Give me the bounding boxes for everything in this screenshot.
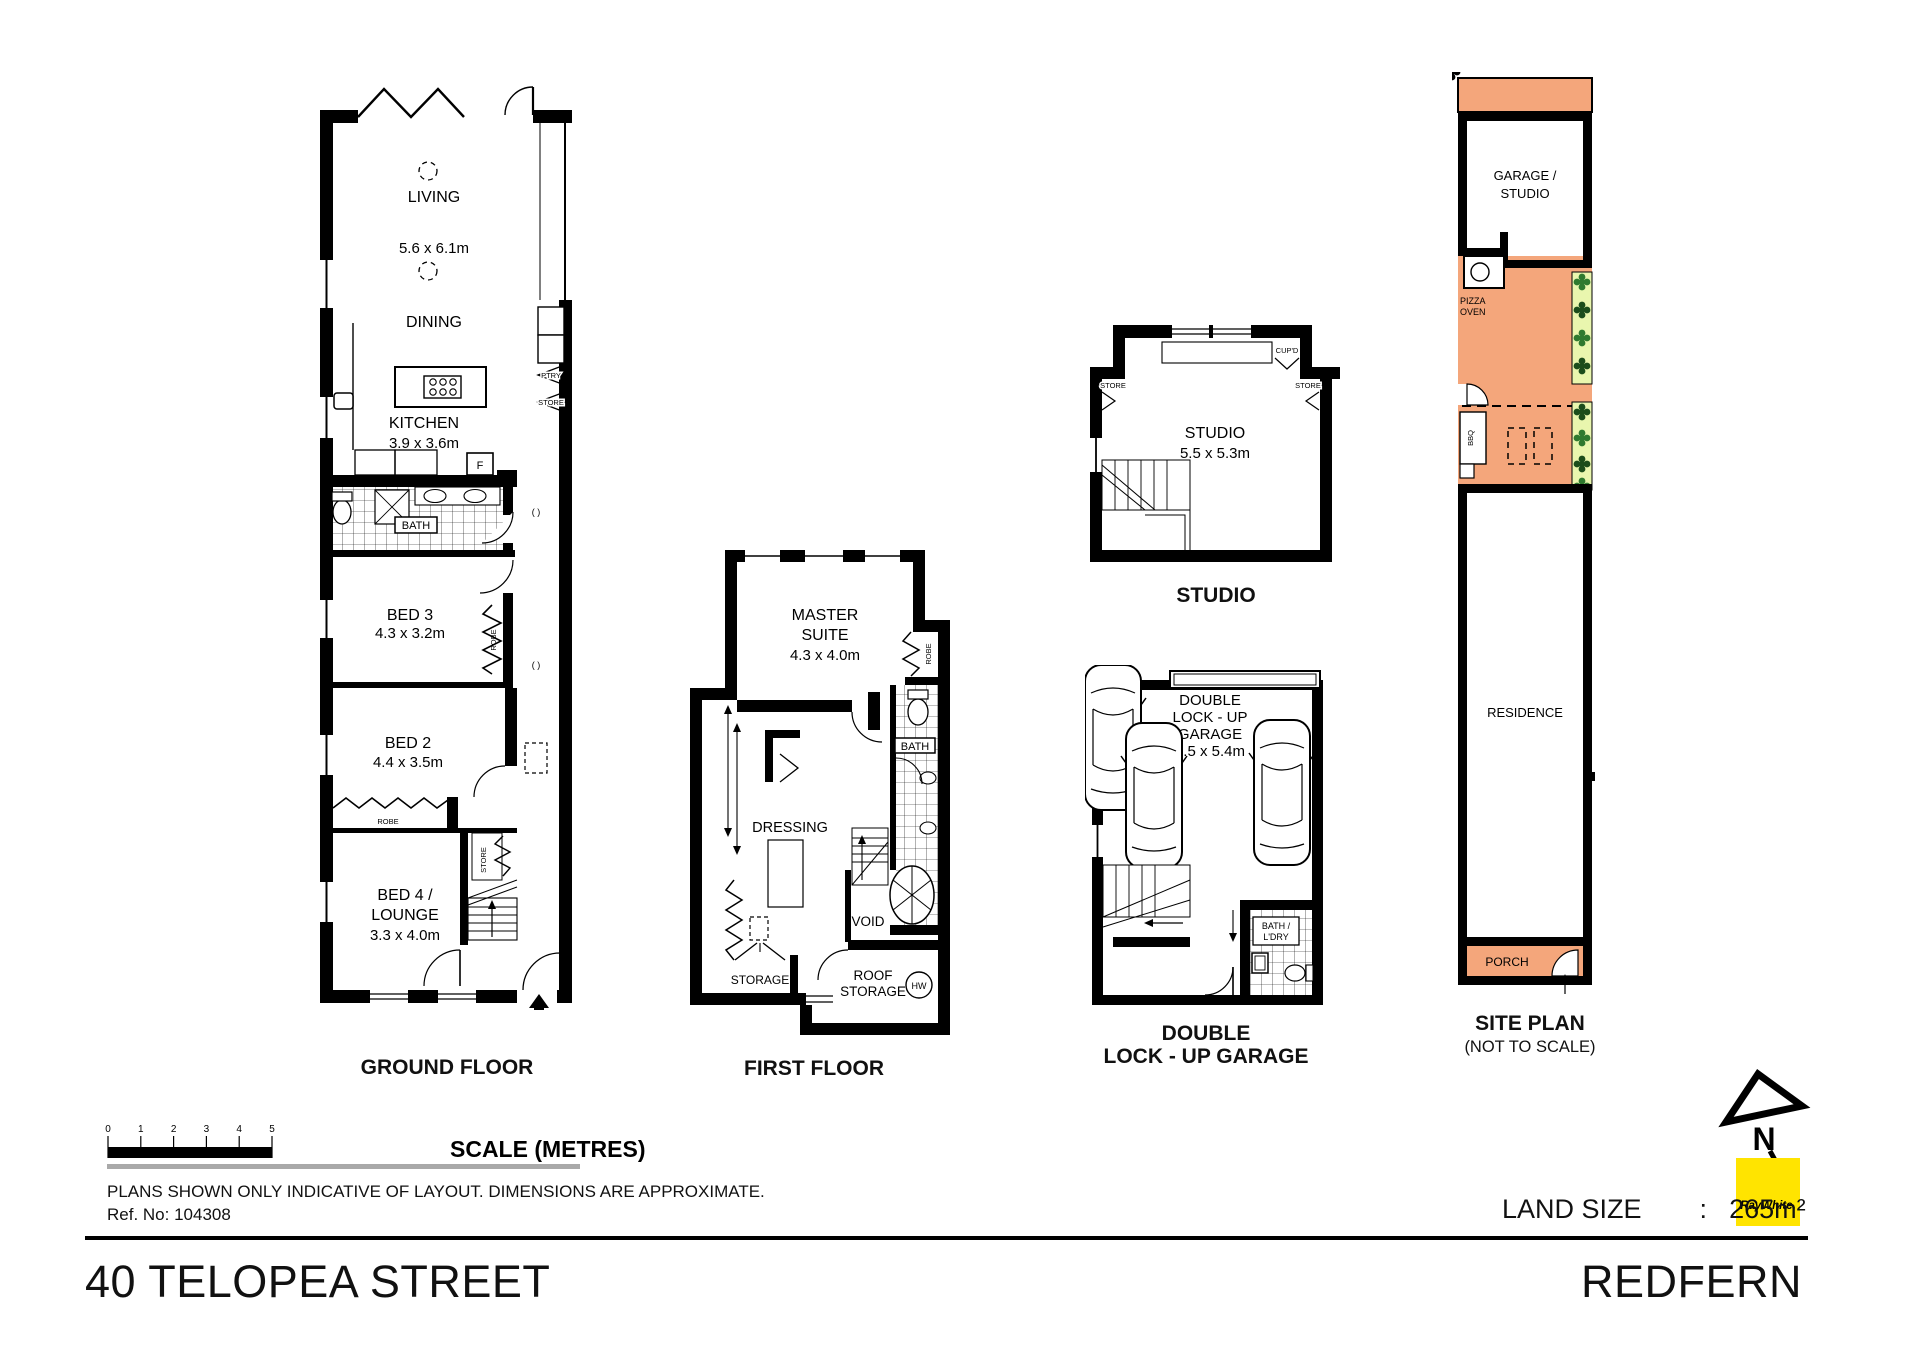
garage-bath-label-2: L'DRY <box>1263 932 1289 942</box>
bed4-door-arc <box>424 950 460 986</box>
storage-label: STORAGE <box>731 973 789 987</box>
land-size-value: 265m² <box>1729 1194 1806 1225</box>
bed4-label-1: BED 4 / <box>377 887 433 904</box>
porch-label: PORCH <box>1485 955 1528 969</box>
scale-tick-0: 0 <box>105 1124 111 1135</box>
robe-zigzag <box>333 798 448 808</box>
pizza-oven-icon <box>1471 263 1489 281</box>
bed2-door-arc <box>474 766 505 797</box>
bed3-dim: 4.3 x 3.2m <box>375 625 445 642</box>
down-arrow <box>1229 933 1237 942</box>
garage-caption-1: DOUBLE <box>1162 1022 1251 1046</box>
store-label: STORE <box>538 398 564 407</box>
land-size-row: LAND SIZE : 265m² <box>1502 1194 1806 1225</box>
garage-caption-2: LOCK - UP GARAGE <box>1104 1045 1309 1069</box>
garage-stairs <box>1103 865 1190 947</box>
first-floor-caption: FIRST FLOOR <box>744 1057 884 1081</box>
property-address: 40 TELOPEA STREET <box>85 1256 550 1308</box>
ground-floor-caption: GROUND FLOOR <box>361 1056 534 1080</box>
wardrobe-nook <box>765 730 800 782</box>
scale-tick-1: 1 <box>138 1124 144 1135</box>
residence-label: RESIDENCE <box>1487 705 1563 720</box>
bed2-robe-label: ROBE <box>377 817 398 826</box>
walkway-arrows <box>724 705 742 960</box>
living-label: LIVING <box>408 189 460 206</box>
toilet-icon <box>333 500 351 524</box>
bbq-label: BBQ <box>1466 430 1475 446</box>
kitchen-island <box>395 367 486 407</box>
toilet-icon <box>1285 965 1305 981</box>
site-porch: PORCH <box>1458 946 1592 994</box>
store-label: STORE <box>1100 381 1126 390</box>
dining-label: DINING <box>406 314 462 331</box>
garage-plan: DOUBLE LOCK - UP GARAGE 5.5 x 5.4m <box>1085 665 1335 1015</box>
scale-tick-2: 2 <box>171 1124 177 1135</box>
garage-label-2: LOCK - UP <box>1172 709 1247 726</box>
master-label-1: MASTER <box>792 607 859 624</box>
hw-label: HW <box>912 981 927 991</box>
first-stairs <box>852 828 888 885</box>
pizza-label-2: OVEN <box>1460 307 1486 317</box>
roof-storage-door-arc <box>818 950 848 980</box>
site-plan: GARAGE / STUDIO PIZZA OVEN <box>1452 72 1602 1002</box>
studio-label: STUDIO <box>1185 425 1245 442</box>
master-label-2: SUITE <box>801 627 848 644</box>
floorplan-page: LIVING 5.6 x 6.1m DINING KITCHEN 3.9 x 3… <box>0 0 1920 1357</box>
master-robe: ROBE <box>903 632 933 676</box>
garage-bath-label-1: BATH / <box>1262 921 1291 931</box>
bed3-robe-label: ROBE <box>489 629 498 650</box>
master-robe-label: ROBE <box>924 643 933 664</box>
site-garage-label-1: GARAGE / <box>1494 168 1557 183</box>
site-garage-studio: GARAGE / STUDIO <box>1458 112 1592 268</box>
basin-icon <box>464 490 486 503</box>
ac-unit-dashed <box>525 743 547 773</box>
roof-storage-label-1: ROOF <box>854 968 893 983</box>
entry-door-arc <box>523 953 560 990</box>
ceiling-fan-icons <box>419 162 437 280</box>
bath-label: BATH <box>402 520 431 532</box>
bifold-doors-zigzag <box>358 89 464 117</box>
site-garage-label-2: STUDIO <box>1500 186 1549 201</box>
garage-rear-door <box>1205 967 1233 995</box>
garage-bathroom: BATH / L'DRY <box>1229 900 1323 1005</box>
studio-stairs <box>1102 460 1190 550</box>
scale-tick-3: 3 <box>204 1124 210 1135</box>
dashed-fixture <box>750 917 768 940</box>
scale-bar: 0 1 2 3 4 5 <box>100 1118 300 1170</box>
scale-tick-4: 4 <box>236 1124 242 1135</box>
land-size-label: LAND SIZE <box>1502 1194 1642 1225</box>
living-dim: 5.6 x 6.1m <box>399 240 469 257</box>
robe-zigzag <box>903 632 919 676</box>
bed3-room: ROBE <box>320 560 513 688</box>
ground-floor-plan: LIVING 5.6 x 6.1m DINING KITCHEN 3.9 x 3… <box>320 60 572 1010</box>
studio-dim: 5.5 x 5.3m <box>1180 445 1250 462</box>
hall-window-symbol: ( ) <box>532 660 541 670</box>
dressing-island <box>768 840 803 907</box>
land-size-separator: : <box>1700 1194 1708 1225</box>
divider-gray <box>107 1164 580 1169</box>
sink-icon <box>334 393 353 409</box>
master-dim: 4.3 x 4.0m <box>790 647 860 664</box>
garage-label-3: GARAGE <box>1178 726 1242 743</box>
bed4-dim: 3.3 x 4.0m <box>370 927 440 944</box>
spa-shower-icon <box>890 866 934 924</box>
site-plan-caption: SITE PLAN <box>1475 1012 1585 1036</box>
garden-strips <box>1572 272 1592 494</box>
hall-window-symbol: ( ) <box>532 507 541 517</box>
cupboard-label: CUP'D <box>1276 346 1299 355</box>
fridge-label: F <box>477 460 484 472</box>
site-residence: RESIDENCE <box>1458 484 1595 985</box>
bed2-label: BED 2 <box>385 735 431 752</box>
first-floor-plan: MASTER SUITE 4.3 x 4.0m ROBE BATH <box>640 540 955 1050</box>
property-suburb: REDFERN <box>1581 1256 1802 1308</box>
disclaimer-line: PLANS SHOWN ONLY INDICATIVE OF LAYOUT. D… <box>107 1182 765 1202</box>
bathroom: BATH <box>320 470 517 557</box>
studio-caption: STUDIO <box>1176 584 1255 608</box>
scale-title: SCALE (METRES) <box>450 1136 646 1163</box>
roof-storage-label-2: STORAGE <box>840 984 906 999</box>
bed2-dim: 4.4 x 3.5m <box>373 754 443 771</box>
void-label: VOID <box>851 914 884 929</box>
toilet-icon <box>908 699 928 725</box>
store-nook-left: STORE <box>1100 381 1126 410</box>
kitchen-label: KITCHEN <box>389 415 459 432</box>
pantry-label: PTRY <box>541 371 561 380</box>
basin-icon <box>424 490 446 503</box>
bed4-store-label: STORE <box>479 847 488 873</box>
robe-zigzag <box>726 880 742 960</box>
bed3-door-arc <box>480 560 513 593</box>
entry-door-top <box>505 87 533 115</box>
scale-tick-5: 5 <box>269 1124 275 1135</box>
scale-bar-solid <box>108 1147 272 1158</box>
cupboard-nook: CUP'D <box>1275 346 1299 369</box>
garage-label-1: DOUBLE <box>1179 692 1241 709</box>
bed4-label-2: LOUNGE <box>371 907 439 924</box>
stairs <box>468 880 517 940</box>
ref-number: Ref. No: 104308 <box>107 1205 231 1225</box>
footer-rule <box>85 1236 1808 1240</box>
first-bath-label: BATH <box>901 741 930 753</box>
studio-bench <box>1162 342 1272 363</box>
basin-icon <box>920 822 936 834</box>
north-arrow-icon: N <box>1712 1068 1812 1163</box>
store-nook-right: STORE <box>1295 381 1321 410</box>
pizza-label-1: PIZZA <box>1460 296 1486 306</box>
studio-plan: CUP'D STORE STORE STUDIO 5.5 x 5.3m <box>1085 320 1340 570</box>
store-label: STORE <box>1295 381 1321 390</box>
rear-lane-strip <box>1458 78 1592 112</box>
dressing-label: DRESSING <box>752 820 828 836</box>
kitchen-dim: 3.9 x 3.6m <box>389 435 459 452</box>
stair-arrow <box>1144 919 1153 927</box>
bed3-label: BED 3 <box>387 607 433 624</box>
hot-water-icon: HW <box>906 972 932 998</box>
site-plan-subcaption: (NOT TO SCALE) <box>1464 1038 1595 1057</box>
